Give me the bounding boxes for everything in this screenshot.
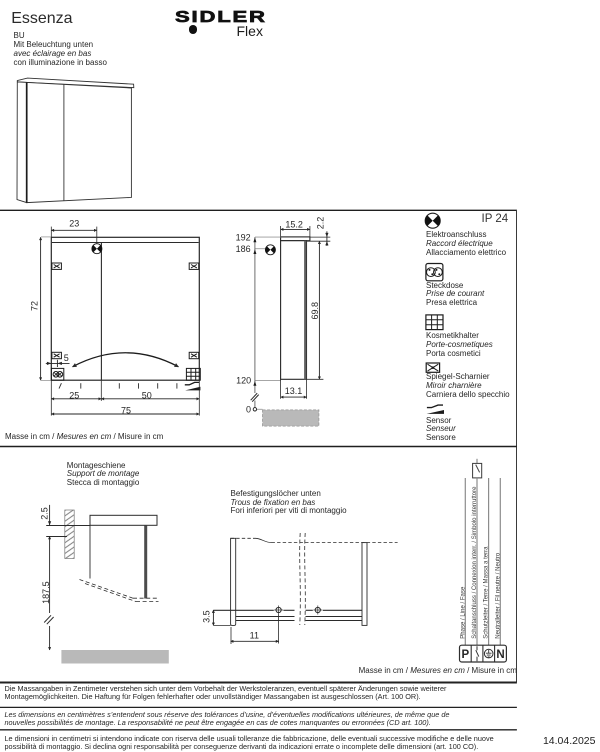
svg-text:Schaltanschluss / Connexion in: Schaltanschluss / Connexion interr. / Si… [472,486,478,639]
svg-text:187.5: 187.5 [41,581,51,604]
svg-text:50: 50 [142,390,152,400]
svg-text:N: N [496,649,504,661]
svg-text:11: 11 [250,630,259,640]
svg-text:192: 192 [236,232,251,242]
svg-text:69.8: 69.8 [310,302,320,320]
svg-text:Schutzleiter / Terre / Massa a: Schutzleiter / Terre / Massa a terra [484,546,490,639]
svg-text:72: 72 [30,301,40,311]
svg-text:186: 186 [236,244,251,254]
svg-text:15.2: 15.2 [285,220,303,230]
svg-text:2.5: 2.5 [39,507,49,520]
svg-text:0: 0 [246,405,251,415]
svg-text:5: 5 [64,353,69,363]
svg-text:13.1: 13.1 [285,386,303,396]
svg-text:P: P [461,649,469,661]
svg-text:75: 75 [121,406,131,416]
svg-text:25: 25 [69,390,79,400]
svg-text:3.5: 3.5 [201,610,211,623]
svg-text:Neutralleiter / Fil neutre / N: Neutralleiter / Fil neutre / Neutro [495,552,501,639]
svg-text:120: 120 [236,376,251,386]
svg-text:Phase / Line / Fase: Phase / Line / Fase [460,586,466,639]
svg-text:23: 23 [69,219,79,229]
svg-text:2.2: 2.2 [316,217,326,230]
